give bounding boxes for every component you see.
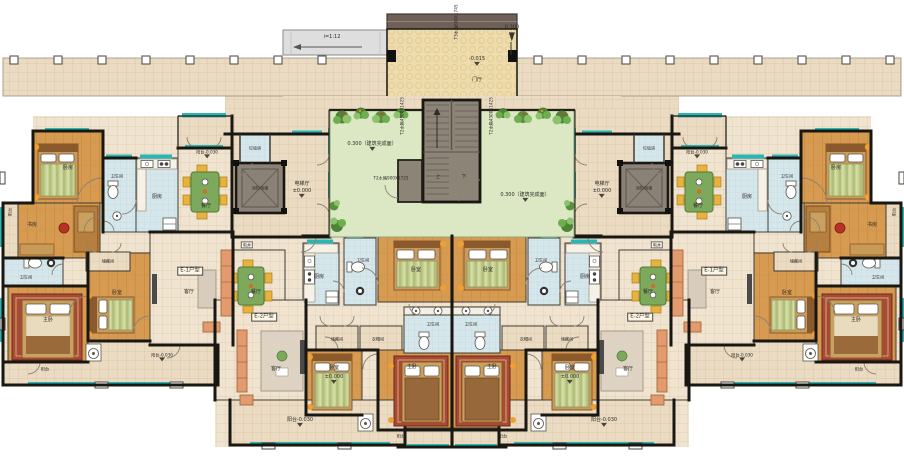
elevator-shaft [233, 160, 287, 214]
bed-bedroom-4 [307, 354, 352, 410]
room-closet [360, 326, 402, 350]
floor-plan-page: 卧房卧房卫生间卫生间厨房厨房餐厅餐厅阳台-0.030阳台-0.030书房书房阳台… [0, 0, 904, 471]
bed-bedroom-3 [394, 241, 446, 291]
bed-master-1 [12, 294, 82, 360]
bed-corner-bedroom [33, 144, 78, 200]
washing-machine-2 [358, 414, 373, 431]
garbage-room [240, 134, 270, 163]
stair-vestibule [398, 160, 422, 202]
entrance-ramp [283, 30, 387, 55]
room-storage-1 [86, 252, 130, 271]
floor-plan-svg [0, 0, 904, 471]
room-storage-2 [316, 326, 358, 350]
bed-bedroom-2 [86, 293, 134, 337]
balcony-top [178, 116, 232, 148]
bed-master-2 [388, 356, 448, 426]
balcony-side [3, 203, 18, 258]
washing-machine-1 [86, 344, 101, 361]
room-bath-1 [103, 158, 136, 232]
